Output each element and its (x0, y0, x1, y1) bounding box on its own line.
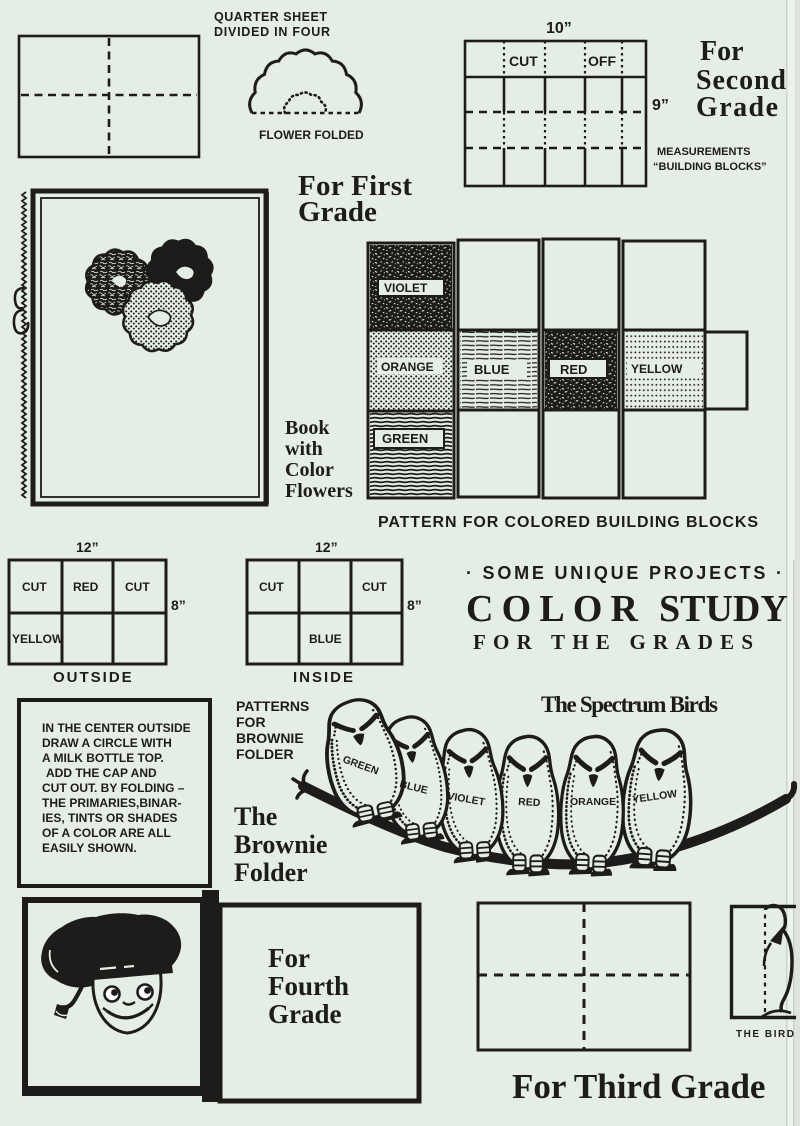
svg-text:FLOWER FOLDED: FLOWER FOLDED (259, 128, 364, 142)
svg-text:8”: 8” (407, 597, 422, 613)
svg-text:DRAW A CIRCLE WITH: DRAW A CIRCLE WITH (42, 736, 172, 750)
svg-text:OF A COLOR ARE ALL: OF A COLOR ARE ALL (42, 826, 171, 840)
svg-text:Folder: Folder (234, 858, 308, 887)
svg-text:Color: Color (285, 459, 334, 481)
svg-text:CUT OUT. BY FOLDING –: CUT OUT. BY FOLDING – (42, 781, 185, 795)
svg-text:For: For (700, 36, 744, 67)
svg-text:8”: 8” (171, 597, 186, 613)
svg-text:EASILY SHOWN.: EASILY SHOWN. (42, 841, 137, 855)
svg-text:CUT: CUT (362, 580, 387, 594)
svg-text:CUT: CUT (125, 580, 150, 594)
svg-text:9”: 9” (652, 97, 669, 114)
svg-text:STUDY: STUDY (659, 588, 788, 630)
svg-text:RED: RED (73, 580, 99, 594)
svg-text:For Third Grade: For Third Grade (512, 1067, 765, 1106)
svg-text:FOR: FOR (236, 714, 266, 730)
svg-text:with: with (285, 438, 323, 460)
svg-text:Fourth: Fourth (268, 971, 349, 1001)
svg-text:CUT: CUT (22, 580, 47, 594)
svg-text:ORANGE: ORANGE (570, 796, 616, 808)
svg-text:IN THE CENTER OUTSIDE: IN THE CENTER OUTSIDE (42, 721, 191, 735)
svg-text:PATTERN FOR COLORED BUILDING B: PATTERN FOR COLORED BUILDING BLOCKS (378, 514, 758, 531)
svg-text:For: For (268, 943, 310, 973)
svg-text:Book: Book (285, 417, 330, 439)
svg-text:OUTSIDE: OUTSIDE (53, 669, 134, 686)
svg-text:10”: 10” (546, 20, 572, 37)
svg-text:MEASUREMENTS: MEASUREMENTS (657, 146, 751, 158)
svg-text:A MILK BOTTLE TOP.: A MILK BOTTLE TOP. (42, 751, 164, 765)
svg-text:BLUE: BLUE (309, 632, 342, 646)
svg-text:Flowers: Flowers (285, 480, 353, 502)
svg-text:ORANGE: ORANGE (381, 360, 434, 374)
svg-text:YELLOW: YELLOW (12, 632, 64, 646)
svg-text:YELLOW: YELLOW (631, 362, 683, 376)
svg-text:BROWNIE: BROWNIE (236, 730, 304, 746)
svg-text:CUT: CUT (259, 580, 284, 594)
svg-text:CUT: CUT (509, 53, 538, 69)
svg-text:BLUE: BLUE (474, 362, 510, 377)
svg-text:The Spectrum Birds: The Spectrum Birds (541, 692, 718, 717)
svg-text:DIVIDED IN FOUR: DIVIDED IN FOUR (214, 25, 330, 39)
svg-text:RED: RED (518, 796, 541, 809)
svg-text:RED: RED (560, 362, 587, 377)
svg-text:GREEN: GREEN (382, 431, 428, 446)
svg-text:THE PRIMARIES,BINAR-: THE PRIMARIES,BINAR- (42, 796, 181, 810)
svg-text:Brownie: Brownie (234, 830, 327, 859)
svg-text:COLOR: COLOR (466, 588, 639, 630)
svg-text:12”: 12” (76, 539, 99, 555)
svg-text:OFF: OFF (588, 53, 616, 69)
svg-text:ADD THE CAP AND: ADD THE CAP AND (46, 766, 157, 780)
svg-text:QUARTER SHEET: QUARTER SHEET (214, 10, 327, 24)
svg-text:FOLDER: FOLDER (236, 746, 294, 762)
svg-text:Grade: Grade (696, 92, 778, 123)
svg-text:PATTERNS: PATTERNS (236, 698, 309, 714)
svg-text:INSIDE: INSIDE (293, 669, 355, 686)
svg-text:Grade: Grade (268, 999, 342, 1029)
svg-text:VIOLET: VIOLET (384, 281, 428, 295)
svg-text:IES, TINTS OR SHADES: IES, TINTS OR SHADES (42, 811, 177, 825)
svg-text:12”: 12” (315, 539, 338, 555)
svg-text:The: The (234, 802, 277, 831)
svg-text:Grade: Grade (298, 196, 377, 228)
svg-text:“BUILDING BLOCKS”: “BUILDING BLOCKS” (653, 161, 767, 173)
